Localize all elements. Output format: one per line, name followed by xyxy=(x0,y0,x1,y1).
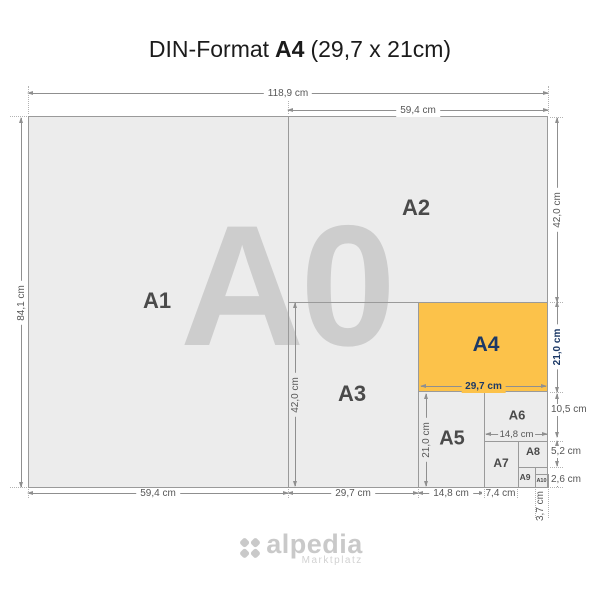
dim-a3-height: 42,0 cm xyxy=(295,303,296,486)
dim-a3-height-label: 42,0 cm xyxy=(290,373,302,417)
dim-a5-width: 14,8 cm xyxy=(418,493,484,494)
dim-a4-height: 21,0 cm xyxy=(557,302,558,392)
extension-line xyxy=(550,302,563,303)
extension-line xyxy=(550,487,563,488)
dim-a2-height-label: 42,0 cm xyxy=(552,188,564,232)
label-a10: A10 xyxy=(536,478,546,484)
divider-a6-bottom xyxy=(484,441,548,442)
dim-a6-width: 14,8 cm xyxy=(486,434,547,435)
dim-a1-width-label: 59,4 cm xyxy=(136,488,180,500)
dim-a5-height: 21,0 cm xyxy=(426,394,427,486)
a0-watermark: A0 xyxy=(126,200,446,376)
extension-line xyxy=(550,441,563,442)
extension-line xyxy=(288,489,289,498)
dim-a5-width-label: 14,8 cm xyxy=(429,488,473,500)
logo-name: alpedia xyxy=(266,531,363,558)
dim-a8-height-label: 5,2 cm xyxy=(549,446,583,458)
extension-line xyxy=(550,392,563,393)
divider-a8-bottom xyxy=(518,467,548,468)
label-a9: A9 xyxy=(520,472,531,482)
extension-line xyxy=(535,489,536,518)
dim-a4-height-label: 21,0 cm xyxy=(552,325,564,370)
dim-a7-width: 7,4 cm xyxy=(484,493,517,494)
dim-a0-height: 84,1 cm xyxy=(21,118,22,487)
dim-a3-width-label: 29,7 cm xyxy=(331,488,375,500)
dim-a6-height-label: 10,5 cm xyxy=(549,404,589,416)
alpedia-logo: alpedia Marktplatz xyxy=(0,531,600,566)
dim-a0-height-label: 84,1 cm xyxy=(16,281,28,325)
extension-line xyxy=(28,489,29,498)
dim-a2-width-label: 59,4 cm xyxy=(396,105,440,117)
label-a4: A4 xyxy=(473,333,500,357)
dim-a2-width: 59,4 cm xyxy=(288,110,548,111)
dim-a0-width-label: 118,9 cm xyxy=(264,88,312,100)
label-a2: A2 xyxy=(402,195,430,221)
extension-line xyxy=(550,467,563,468)
extension-line xyxy=(548,489,549,518)
extension-line xyxy=(484,489,485,498)
extension-line xyxy=(517,489,518,498)
title-format: A4 xyxy=(275,36,304,62)
dim-a7-width-label: 7,4 cm xyxy=(481,488,519,500)
clover-icon xyxy=(237,535,263,561)
extension-line xyxy=(550,117,563,118)
extension-line xyxy=(10,487,27,488)
page-title: DIN-FormatA4(29,7 x 21cm) xyxy=(0,36,600,62)
dim-a6-width-label: 14,8 cm xyxy=(498,429,536,441)
dim-a4-width-label: 29,7 cm xyxy=(461,381,506,393)
label-a8: A8 xyxy=(526,446,540,458)
extension-line xyxy=(548,86,549,114)
extension-line xyxy=(418,489,419,498)
extension-line xyxy=(28,86,29,114)
label-a1: A1 xyxy=(143,288,171,314)
extension-line xyxy=(10,116,27,117)
dim-a2-height: 42,0 cm xyxy=(557,118,558,302)
extension-line xyxy=(288,101,289,114)
dim-a1-width: 59,4 cm xyxy=(28,493,288,494)
logo-text: alpedia Marktplatz xyxy=(266,531,363,566)
dim-a0-width: 118,9 cm xyxy=(28,93,548,94)
label-a6: A6 xyxy=(509,408,526,423)
din-format-diagram: DIN-FormatA4(29,7 x 21cm) A0 A1 A2 A3 A4… xyxy=(0,0,600,600)
dim-a5-height-label: 21,0 cm xyxy=(421,418,433,462)
dim-a10-width-label: 3,7 cm xyxy=(535,488,547,524)
title-prefix: DIN-Format xyxy=(149,36,269,62)
label-a7: A7 xyxy=(493,456,508,470)
divider-a5-right xyxy=(484,392,485,488)
dim-a4-width: 29,7 cm xyxy=(421,386,546,387)
label-a3: A3 xyxy=(338,381,366,407)
dim-a10-height-label: 2,6 cm xyxy=(549,474,583,486)
dim-a3-width: 29,7 cm xyxy=(288,493,418,494)
label-a5: A5 xyxy=(439,428,465,451)
title-size: (29,7 x 21cm) xyxy=(310,36,451,62)
